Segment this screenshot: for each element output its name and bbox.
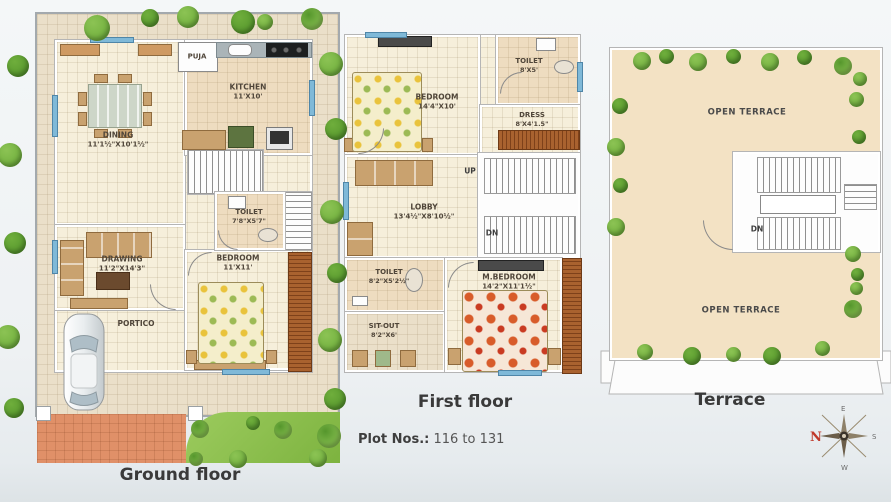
- dining-chair: [143, 92, 152, 106]
- window-marker: [309, 80, 315, 116]
- tree-icon: [637, 344, 653, 360]
- room-label-drawing: DRAWING11'2"X14'3": [99, 255, 145, 274]
- sitout-chair: [375, 350, 391, 367]
- tree-icon: [274, 421, 292, 439]
- tree-icon: [325, 118, 347, 140]
- room-label-kitchen: KITCHEN11'X10': [230, 83, 267, 102]
- tree-icon: [613, 178, 628, 193]
- dining-chair: [78, 92, 87, 106]
- room-label-toilet-ground: TOILET7'8"X5'7": [232, 208, 266, 226]
- refrigerator-door: [270, 131, 289, 144]
- tree-icon: [141, 9, 159, 27]
- sideboard: [138, 44, 172, 56]
- tree-icon: [319, 52, 343, 76]
- terrace-title: Terrace: [640, 390, 820, 410]
- kitchen-lower-counter: [182, 130, 226, 150]
- room-label-lobby: LOBBY13'4½"X8'10½": [394, 203, 455, 222]
- room-label-bedroom-ground: BEDROOM11'X11': [216, 254, 259, 273]
- tree-icon: [7, 55, 29, 77]
- tree-icon: [689, 53, 707, 71]
- side-table: [186, 350, 197, 364]
- side-table: [422, 138, 433, 152]
- tree-icon: [607, 138, 625, 156]
- tree-icon: [177, 6, 199, 28]
- tree-icon: [320, 200, 344, 224]
- wash-basin: [352, 296, 368, 306]
- first-floor-title: First floor: [370, 392, 560, 412]
- dining-chair: [94, 74, 108, 83]
- tree-icon: [318, 328, 342, 352]
- tree-icon: [726, 347, 741, 362]
- tree-icon: [851, 268, 864, 281]
- plot-numbers: Plot Nos.: 116 to 131: [358, 432, 504, 447]
- tree-icon: [850, 282, 863, 295]
- car-top-view: [60, 312, 108, 412]
- stair-flight: [757, 217, 841, 250]
- kitchen-sink: [228, 44, 252, 56]
- lobby-sofa: [355, 160, 433, 186]
- tree-icon: [607, 218, 625, 236]
- sitout-chair: [352, 350, 368, 367]
- stair-down-label: DN: [486, 229, 499, 238]
- plot-numbers-label: Plot Nos.:: [358, 432, 429, 447]
- tree-icon: [849, 92, 864, 107]
- tree-icon: [612, 98, 628, 114]
- floor-plan-sheet: DINING11'1½"X10'1½" KITCHEN11'X10' PUJA …: [0, 0, 891, 502]
- side-table: [266, 350, 277, 364]
- wash-basin: [536, 38, 556, 51]
- side-table: [548, 348, 561, 365]
- dining-table: [88, 84, 142, 128]
- ground-staircase-flight: [285, 192, 312, 250]
- room-label-toilet-first-bottom: TOILET8'2"X5'2½": [369, 268, 410, 286]
- room-label-sitout: SIT-OUT8'2"X6': [369, 322, 400, 340]
- side-table: [448, 348, 461, 365]
- tree-icon: [834, 57, 852, 75]
- room-label-toilet-first-top: TOILET8'X5': [515, 57, 542, 75]
- room-label-dress: DRESS8'X4'1.5": [516, 111, 549, 129]
- lobby-sofa: [347, 222, 373, 256]
- tree-icon: [683, 347, 701, 365]
- tree-icon: [763, 347, 781, 365]
- stair-flight-side: [844, 184, 877, 210]
- room-label-bedroom-first: BEDROOM14'4"X10': [415, 93, 458, 112]
- tree-icon: [0, 325, 20, 349]
- svg-text:E: E: [841, 405, 845, 413]
- tree-icon: [231, 10, 255, 34]
- sideboard: [60, 44, 100, 56]
- tree-icon: [317, 424, 341, 448]
- window-marker: [365, 32, 407, 38]
- ground-staircase: [188, 150, 263, 194]
- window-marker: [343, 182, 349, 220]
- toilet-seat: [258, 228, 278, 242]
- open-terrace-top-label: OPEN TERRACE: [708, 107, 787, 118]
- coffee-table: [96, 272, 130, 290]
- tree-icon: [324, 388, 346, 410]
- plot-numbers-value: 116 to 131: [433, 432, 504, 447]
- gate-post: [36, 406, 51, 421]
- window-marker: [498, 370, 542, 376]
- kitchen-appliance: [228, 126, 254, 148]
- ground-floor-title: Ground floor: [80, 465, 280, 485]
- tree-icon: [659, 49, 674, 64]
- tree-icon: [844, 300, 862, 318]
- window-marker: [52, 95, 58, 137]
- master-bed: [462, 290, 548, 372]
- tree-icon: [761, 53, 779, 71]
- driveway: [37, 414, 186, 463]
- room-label-portico: PORTICO: [117, 319, 154, 329]
- compass-rose-icon: N E S W: [798, 402, 888, 474]
- console-table: [70, 298, 128, 309]
- room-label-master-bedroom: M.BEDROOM14'2"X11'1½": [482, 273, 535, 292]
- tree-icon: [246, 416, 260, 430]
- window-marker: [222, 369, 270, 375]
- tree-icon: [853, 72, 867, 86]
- dress-closet: [498, 130, 580, 150]
- window-marker: [52, 240, 58, 274]
- tree-icon: [257, 14, 273, 30]
- svg-text:S: S: [872, 433, 877, 441]
- wash-basin: [228, 196, 246, 209]
- tree-icon: [191, 420, 209, 438]
- open-terrace-bottom-label: OPEN TERRACE: [702, 305, 781, 316]
- tree-icon: [84, 15, 110, 41]
- toilet-seat: [554, 60, 574, 74]
- window-vent: [478, 260, 544, 271]
- sitout-chair: [400, 350, 416, 367]
- deck-strip: [288, 252, 312, 372]
- stair-up-label: UP: [464, 167, 476, 176]
- svg-text:N: N: [810, 430, 822, 445]
- tree-icon: [815, 341, 830, 356]
- tree-icon: [633, 52, 651, 70]
- tree-icon: [0, 143, 22, 167]
- tree-icon: [4, 398, 24, 418]
- tree-icon: [301, 8, 323, 30]
- tree-icon: [4, 232, 26, 254]
- bed: [198, 282, 264, 364]
- gate-post: [188, 406, 203, 421]
- dining-chair: [143, 112, 152, 126]
- tree-icon: [189, 452, 203, 466]
- stove-cooktop: [266, 43, 308, 57]
- stair-flight-up: [484, 158, 576, 194]
- window-marker: [577, 62, 583, 92]
- dining-chair: [118, 74, 132, 83]
- stair-flight: [757, 157, 841, 193]
- room-label-dining: DINING11'1½"X10'1½": [88, 131, 149, 150]
- tree-icon: [726, 49, 741, 64]
- tree-icon: [845, 246, 861, 262]
- tree-icon: [797, 50, 812, 65]
- tree-icon: [309, 449, 327, 467]
- stair-landing: [760, 195, 836, 214]
- svg-text:W: W: [841, 464, 848, 472]
- stair-down-label: DN: [751, 225, 764, 234]
- deck-strip: [562, 258, 582, 374]
- room-label-puja: PUJA: [188, 52, 207, 61]
- dining-chair: [78, 112, 87, 126]
- tree-icon: [852, 130, 866, 144]
- tree-icon: [327, 263, 347, 283]
- sofa: [60, 240, 84, 296]
